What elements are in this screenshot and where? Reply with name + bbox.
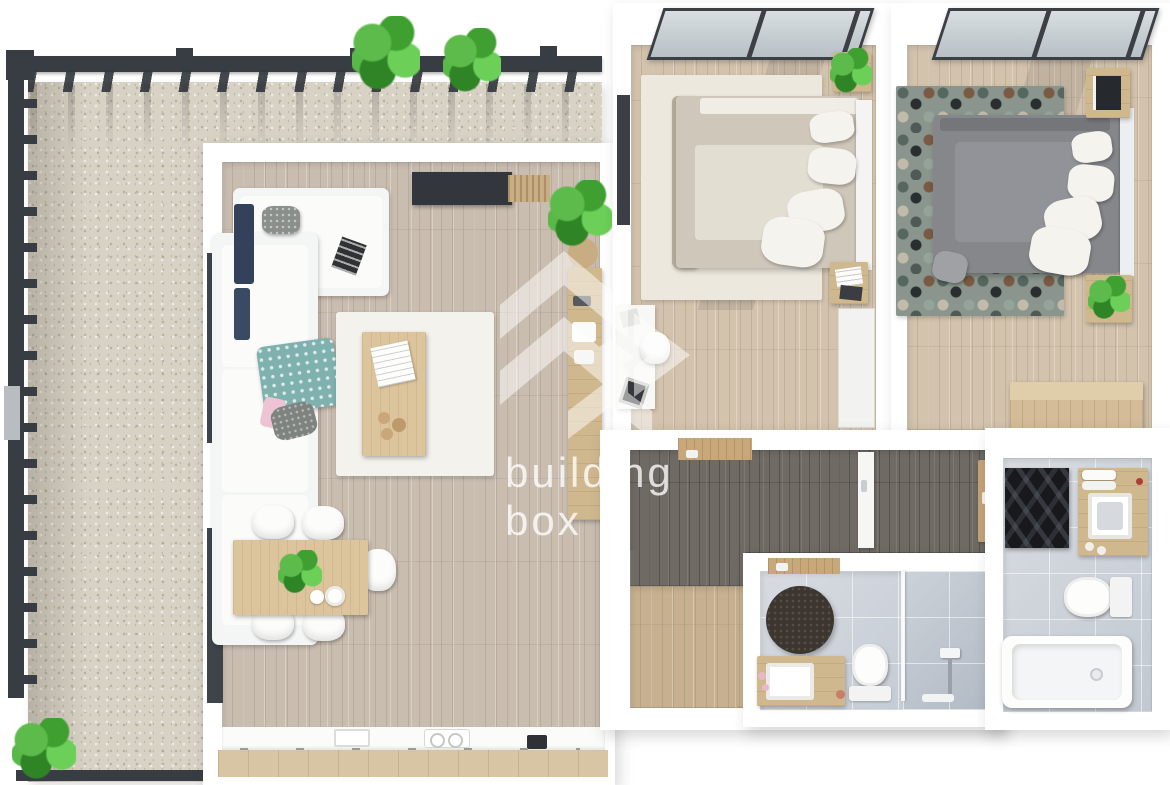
floorplan-canvas: building box xyxy=(0,0,1170,785)
watermark: building box xyxy=(0,0,1170,785)
watermark-line1: building xyxy=(505,452,674,494)
chevron-box-logo-icon xyxy=(492,243,697,458)
watermark-line2: box xyxy=(505,500,582,542)
